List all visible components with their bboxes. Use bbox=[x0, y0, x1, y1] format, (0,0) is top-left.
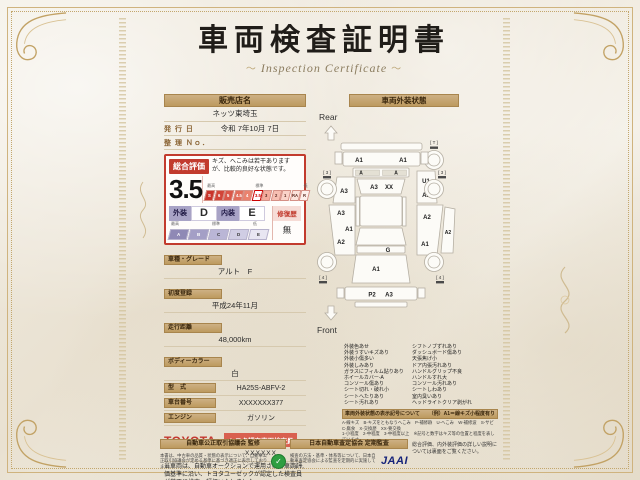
diagram-label-cowl: G bbox=[386, 248, 391, 254]
repair-history-value: 無 bbox=[273, 221, 301, 240]
chassis-value: XXXXXXX377 bbox=[216, 400, 306, 407]
diagram-label-hood: A1 bbox=[372, 267, 380, 273]
legend-item: ヘッドライトクリア剥がれ bbox=[412, 400, 498, 406]
grade-cell: A bbox=[168, 229, 190, 240]
body-color-label: ボディーカラー bbox=[164, 357, 222, 367]
first-registration-value: 平成24年11月 bbox=[164, 300, 306, 313]
corner-ornament-icon bbox=[572, 10, 630, 68]
wheel-front-left-inner bbox=[321, 256, 333, 268]
score-scale-labels: 最高 標準 低 bbox=[205, 183, 310, 189]
diagram-label-front-bumper-right: A3 bbox=[385, 293, 393, 299]
diagram-label-rear-glass: A3 bbox=[370, 185, 378, 191]
rating-header: 総合評価 bbox=[169, 159, 209, 174]
tire-front-right-mark bbox=[436, 281, 444, 283]
grade-section: 外装 D 内装 E 最高 標準 低 A B C D bbox=[169, 206, 301, 240]
repair-history-column: 修復歴 無 bbox=[272, 206, 301, 240]
rating-header-row: 総合評価 キズ、へこみは若干ありますが、比較的良好な状態です。 bbox=[169, 159, 301, 175]
type-value: HA25S-ABFV-2 bbox=[216, 385, 306, 392]
ref-number-row: 整 理 Ｎｏ． bbox=[164, 136, 306, 150]
diagram-label-right-door-top: A2 bbox=[423, 215, 431, 221]
spare-tire-mark bbox=[430, 147, 438, 149]
shop-name-header: 販売店名 bbox=[164, 94, 306, 107]
mileage-section: 走行距離 48,000km bbox=[164, 316, 306, 347]
right-flourish-icon bbox=[545, 265, 585, 335]
left-stitch-ornament bbox=[119, 18, 126, 462]
fair-trade-box: 自動車公正取引協議会 監修 本書は、中古車の品質・状態の表示について、自動車公正… bbox=[160, 439, 286, 472]
certificate-footer: 自動車公正取引協議会 監修 本書は、中古車の品質・状態の表示について、自動車公正… bbox=[160, 439, 500, 472]
grade-cell: E bbox=[248, 229, 270, 240]
rear-bumper-cap-left bbox=[335, 152, 342, 164]
tire-rear-right-label: [ 3 ] bbox=[438, 170, 446, 175]
chassis-label: 車台番号 bbox=[164, 398, 216, 408]
chassis-row: 車台番号 XXXXXXX377 bbox=[164, 397, 306, 411]
rear-bumper-cap-right bbox=[421, 152, 428, 164]
grade-cell: D bbox=[228, 229, 250, 240]
issue-date-label: 発 行 日 bbox=[164, 124, 194, 134]
scale-label-high: 最高 bbox=[171, 221, 179, 227]
scale-label-mid: 標準 bbox=[212, 221, 220, 227]
overall-rating-box: 総合評価 キズ、へこみは若干ありますが、比較的良好な状態です。 3.5 最高 標… bbox=[164, 154, 306, 245]
front-bumper-panel bbox=[345, 287, 417, 300]
rear-spoiler-panel bbox=[341, 143, 422, 150]
wheel-rear-left-inner bbox=[321, 183, 333, 195]
diagram-label-left-door-mid: A1 bbox=[345, 227, 353, 233]
spare-tire-icon-inner bbox=[428, 154, 440, 166]
model-section: 車種・グレード アルト F bbox=[164, 248, 306, 279]
body-color-section: ボディーカラー 白 bbox=[164, 350, 306, 381]
codes-description: A-線キズ B-キズをともなうへこみ P-補修跡 U-へこみ W-補修波 S-サ… bbox=[342, 420, 498, 439]
jaai-text: 検査の方法・基準・体系等について、日本自動車査定協会による監査を定期的に実施して… bbox=[290, 453, 379, 470]
grade-cell: C bbox=[208, 229, 230, 240]
diagram-label-left-door-top: A3 bbox=[337, 211, 345, 217]
interior-grade-value: E bbox=[239, 206, 265, 221]
codes-title: 車両外装状態の表示記号について bbox=[345, 410, 420, 418]
diagram-label-front-bumper-left: P2 bbox=[368, 293, 376, 299]
first-registration-label: 初度登録 bbox=[164, 289, 222, 299]
engine-label: エンジン bbox=[164, 413, 216, 423]
right-sill bbox=[403, 197, 407, 226]
diagram-label-left-door-bottom: A2 bbox=[337, 240, 345, 246]
wheel-front-right-inner bbox=[428, 256, 440, 268]
wheel-rear-right-inner bbox=[428, 183, 440, 195]
rear-glass-panel bbox=[357, 179, 405, 194]
scale-cell: R bbox=[299, 190, 311, 201]
diagram-label-right-outer: A2 bbox=[445, 230, 452, 236]
type-label: 型 式 bbox=[164, 383, 216, 393]
issue-date-value: 令和 7年10月 7日 bbox=[194, 123, 306, 134]
subtitle-ornament: ～ bbox=[246, 64, 257, 75]
car-exterior-diagram: Rear [ T ] A1 A1 A A A3 XX bbox=[311, 107, 461, 339]
defect-legend: 外装色あせ 外装うすいキズあり 外装小傷多い 外装しみあり ガラスにフィルム貼り… bbox=[344, 344, 498, 406]
exterior-grade-label: 外装 bbox=[169, 206, 191, 221]
model-value: アルト F bbox=[164, 266, 306, 279]
grade-scale-labels: 最高 標準 低 bbox=[169, 221, 259, 227]
codes-header-bar: 車両外装状態の表示記号について （例）A1＝線キズ小程度有り bbox=[342, 409, 498, 419]
left-flourish-icon bbox=[126, 180, 160, 240]
fair-trade-title: 自動車公正取引協議会 監修 bbox=[160, 439, 286, 449]
front-lower-strip bbox=[355, 302, 407, 307]
page-subtitle: ～ Inspection Certificate ～ bbox=[150, 60, 498, 76]
rating-comment: キズ、へこみは若干ありますが、比較的良好な状態です。 bbox=[212, 159, 301, 175]
rating-score-row: 3.5 最高 標準 低 S 6 5 4.5 4 3.5 3 bbox=[169, 176, 301, 203]
repair-history-label: 修復歴 bbox=[273, 206, 301, 221]
rear-arrow-icon bbox=[325, 126, 337, 140]
diagram-label-rear-trim-right: A bbox=[394, 171, 398, 177]
grade-scale-cells: A B C D E bbox=[169, 229, 269, 240]
jaai-logo: JAAI bbox=[381, 455, 408, 467]
codes-line: A-線キズ B-キズをともなうへこみ P-補修跡 U-へこみ W-補修波 S-サ… bbox=[342, 420, 498, 431]
jaai-box: 日本自動車査定協会 定期監査 検査の方法・基準・体系等について、日本自動車査定協… bbox=[290, 439, 408, 472]
diagram-label-rear-bumper-right: A1 bbox=[399, 158, 407, 164]
diagram-label-right-door-bottom: A1 bbox=[421, 242, 429, 248]
left-sill bbox=[356, 197, 360, 226]
scale-label-high: 最高 bbox=[207, 183, 215, 189]
diagram-label-left-fender: A3 bbox=[340, 189, 348, 195]
diagram-label-rear-glass-xx: XX bbox=[385, 185, 393, 191]
exterior-grade-value: D bbox=[191, 206, 217, 221]
issue-date-row: 発 行 日 令和 7年10月 7日 bbox=[164, 122, 306, 136]
score-scale-cells: S 6 5 4.5 4 3.5 3 2 1 RA R bbox=[205, 190, 310, 201]
tire-front-right-label: [ 4 ] bbox=[436, 275, 444, 280]
scale-label-low: 低 bbox=[253, 221, 257, 227]
type-row: 型 式 HA25S-ABFV-2 bbox=[164, 382, 306, 396]
corner-ornament-icon bbox=[10, 10, 68, 68]
right-stitch-ornament bbox=[503, 18, 510, 462]
score-scale: 最高 標準 低 S 6 5 4.5 4 3.5 3 2 1 RA bbox=[203, 183, 310, 203]
corner-ornament-icon bbox=[572, 412, 630, 470]
roof-panel bbox=[360, 196, 402, 226]
corner-ornament-icon bbox=[10, 412, 68, 470]
cowl-strip bbox=[357, 246, 405, 253]
certificate-title-block: 車両検査証明書 ～ Inspection Certificate ～ bbox=[150, 24, 498, 76]
tire-front-left-label: [ 4 ] bbox=[319, 275, 327, 280]
vehicle-info-column: 販売店名 ネッツ東埼玉 発 行 日 令和 7年10月 7日 整 理 Ｎｏ． 総合… bbox=[164, 94, 306, 480]
subtitle-text: Inspection Certificate bbox=[261, 61, 387, 75]
grade-cell: B bbox=[188, 229, 210, 240]
page-title: 車両検査証明書 bbox=[150, 24, 498, 59]
spare-tire-label: [ T ] bbox=[430, 140, 438, 145]
front-direction-label: Front bbox=[317, 325, 337, 335]
tire-rear-left-mark bbox=[323, 176, 331, 178]
body-color-value: 白 bbox=[164, 368, 306, 381]
codes-line: 1-小程度 2-中程度 3-中程度以上 ※記号と数字はキズ等の位置と程度を表して… bbox=[342, 431, 498, 439]
front-bumper-cap-right bbox=[418, 288, 425, 298]
scale-label-low: 低 bbox=[304, 183, 308, 189]
jaai-title: 日本自動車査定協会 定期監査 bbox=[290, 439, 408, 449]
codes-example: （例）A1＝線キズ小程度有り bbox=[429, 410, 495, 418]
grade-row: 外装 D 内装 E bbox=[169, 206, 269, 221]
mileage-label: 走行距離 bbox=[164, 323, 222, 333]
defect-legend-left: 外装色あせ 外装うすいキズあり 外装小傷多い 外装しみあり ガラスにフィルム貼り… bbox=[344, 344, 412, 406]
front-arrow-icon bbox=[325, 306, 337, 320]
scale-label-mid: 標準 bbox=[255, 183, 263, 189]
ref-number-label: 整 理 Ｎｏ． bbox=[164, 138, 210, 148]
tire-rear-right-mark bbox=[438, 176, 446, 178]
tire-rear-left-label: [ 3 ] bbox=[323, 170, 331, 175]
rear-direction-label: Rear bbox=[319, 112, 338, 122]
windshield-panel bbox=[356, 228, 406, 245]
hood-panel bbox=[352, 255, 410, 283]
reverse-side-note: 総合評価、内外装評価の詳しい説明については裏面をご覧ください。 bbox=[412, 439, 498, 472]
tire-front-left-mark bbox=[319, 281, 327, 283]
interior-grade-label: 内装 bbox=[217, 206, 239, 221]
model-label: 車種・グレード bbox=[164, 255, 222, 265]
engine-value: ガソリン bbox=[216, 413, 306, 423]
shop-name-value: ネッツ東埼玉 bbox=[164, 107, 306, 122]
mileage-value: 48,000km bbox=[164, 334, 306, 347]
exterior-condition-header: 車両外装状態 bbox=[349, 94, 459, 107]
defect-legend-right: シフトノブずれあり ダッシュボード傷あり 天張焦げ小 ドア内張汚れあり ハンドル… bbox=[412, 344, 498, 406]
rating-score: 3.5 bbox=[169, 176, 203, 203]
inspection-certificate-page: 車両検査証明書 ～ Inspection Certificate ～ 販売店名 … bbox=[0, 0, 640, 480]
legend-item: シート汚れあり bbox=[344, 400, 412, 406]
diagram-label-rear-bumper-left: A1 bbox=[355, 158, 363, 164]
subtitle-ornament: ～ bbox=[391, 64, 402, 75]
fair-trade-text: 本書は、中古車の品質・状態の表示について、自動車公正取引協議会が定める基準に基づ… bbox=[160, 453, 269, 470]
engine-row: エンジン ガソリン bbox=[164, 412, 306, 426]
first-registration-section: 初度登録 平成24年11月 bbox=[164, 282, 306, 313]
fair-trade-logo-icon: ✓ bbox=[271, 454, 286, 469]
front-bumper-cap-left bbox=[337, 288, 344, 298]
diagram-label-rear-trim-left: A bbox=[359, 171, 363, 177]
